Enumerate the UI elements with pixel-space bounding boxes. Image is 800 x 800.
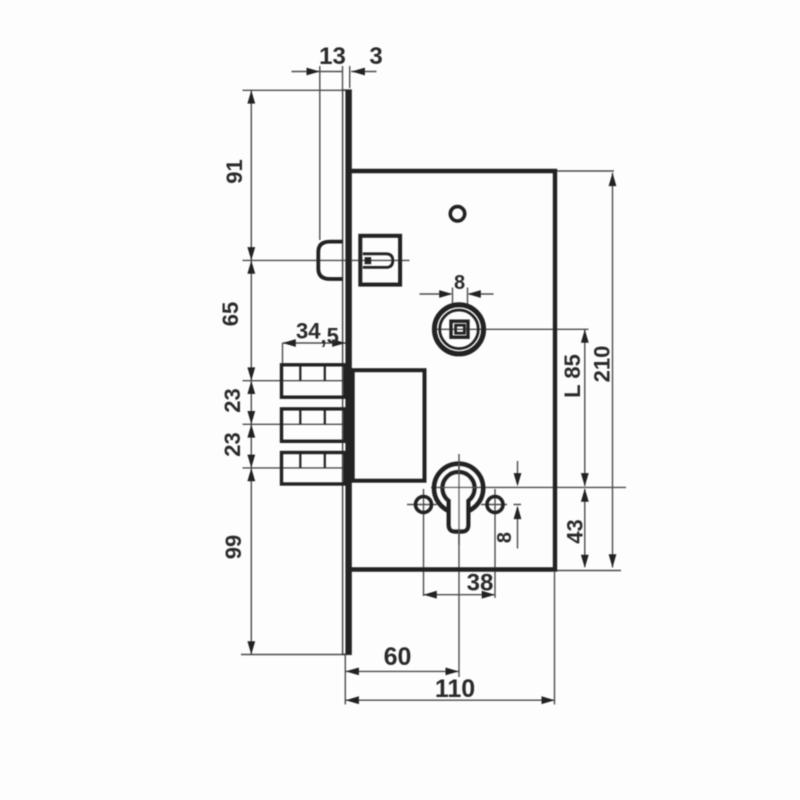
svg-text:8: 8 — [454, 272, 465, 294]
svg-text:60: 60 — [384, 643, 412, 671]
svg-text:L 85: L 85 — [560, 354, 585, 398]
svg-text:23: 23 — [220, 388, 245, 412]
svg-text:23: 23 — [220, 432, 245, 456]
svg-text:38: 38 — [467, 570, 494, 597]
svg-text:3: 3 — [369, 43, 382, 70]
svg-text:8: 8 — [494, 532, 516, 543]
svg-text:13: 13 — [319, 43, 346, 70]
svg-text:110: 110 — [435, 675, 475, 703]
svg-text:91: 91 — [222, 159, 247, 183]
svg-text:210: 210 — [590, 346, 615, 383]
svg-text:99: 99 — [221, 535, 246, 559]
svg-text:65: 65 — [218, 302, 243, 326]
svg-text:43: 43 — [563, 519, 588, 543]
